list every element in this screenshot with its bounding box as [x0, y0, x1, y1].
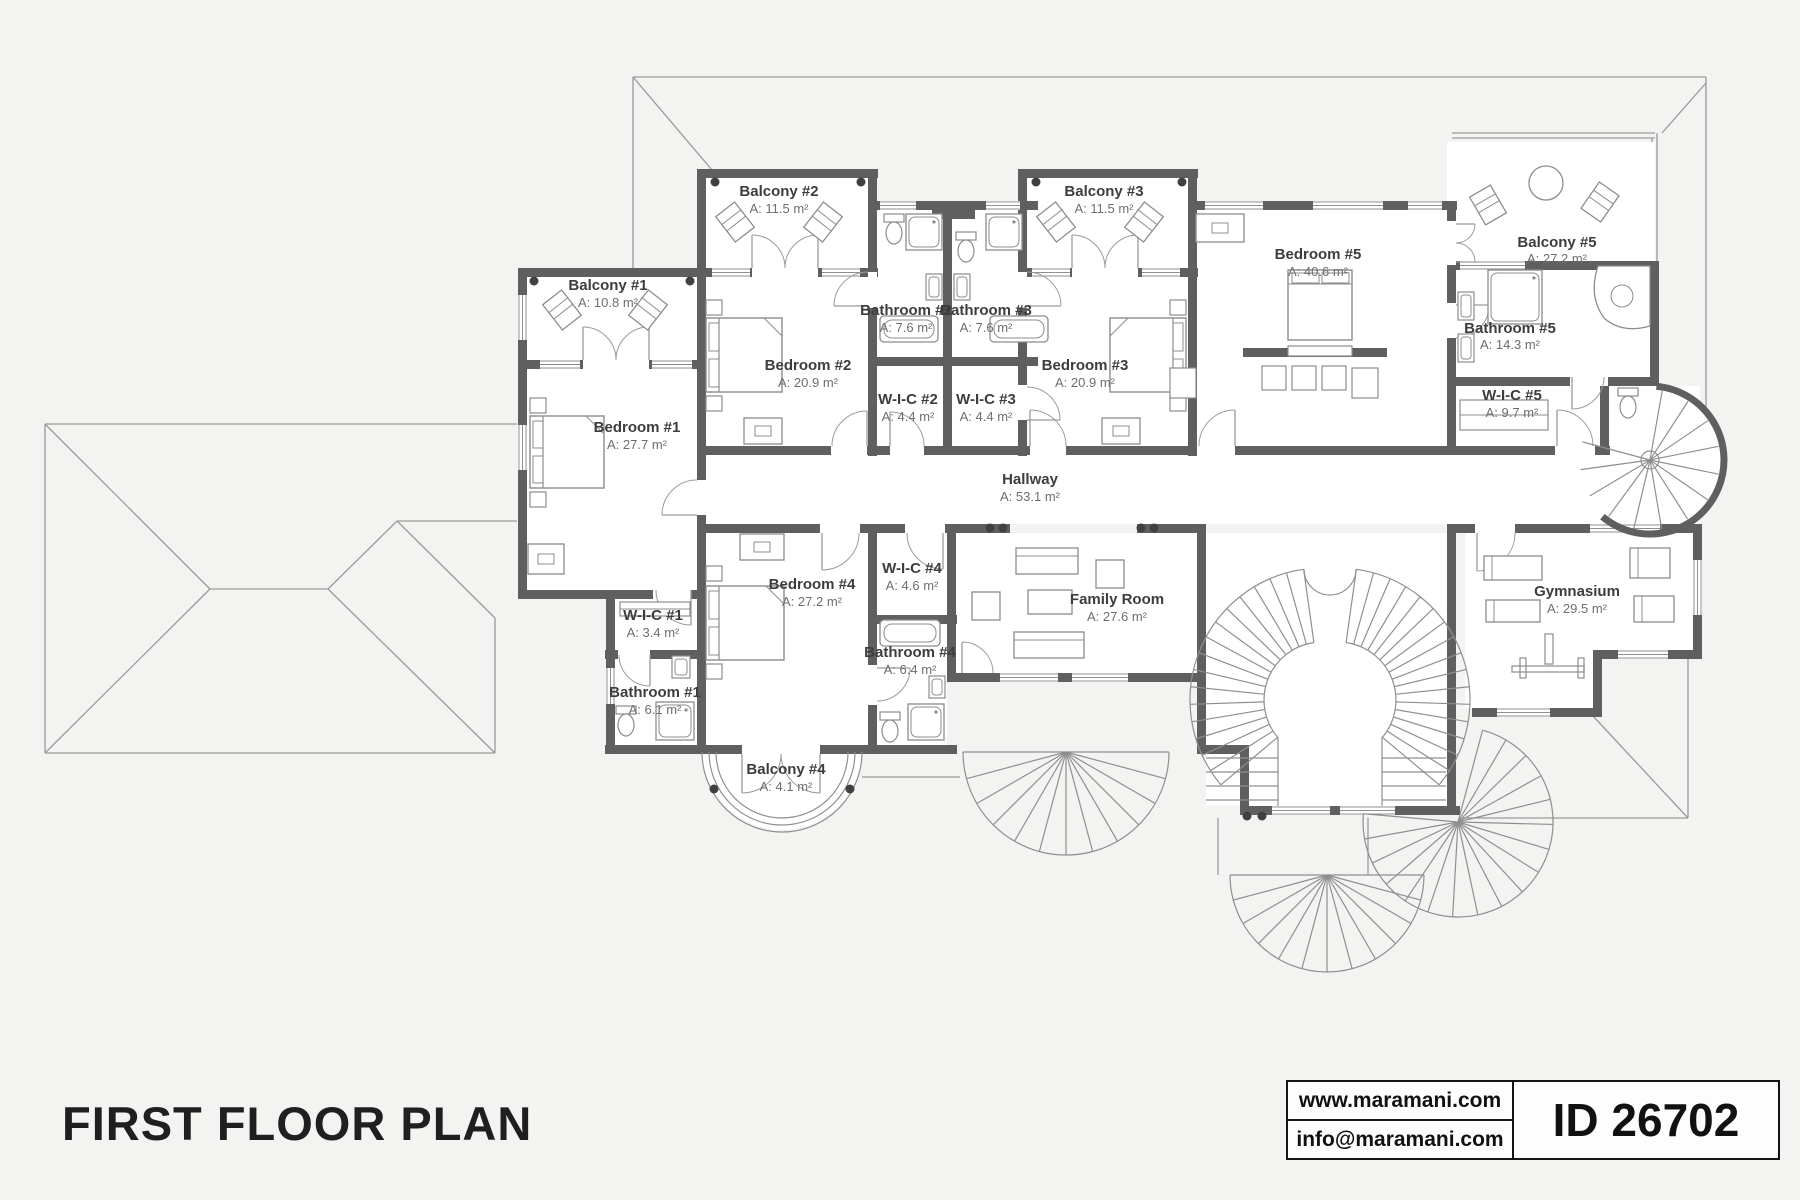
label-balcony1-name: Balcony #1 [568, 277, 647, 294]
label-bedroom3-name: Bedroom #3 [1042, 357, 1129, 374]
label-balcony3-area: A: 11.5 m² [1074, 201, 1134, 216]
label-balcony5-area: A: 27.2 m² [1527, 251, 1588, 266]
label-balcony5-name: Balcony #5 [1517, 234, 1596, 251]
label-wic1-area: A: 3.4 m² [627, 625, 680, 640]
label-balcony4-area: A: 4.1 m² [760, 779, 813, 794]
label-bathroom4-name: Bathroom #4 [864, 644, 956, 661]
label-bathroom5-area: A: 14.3 m² [1480, 337, 1541, 352]
label-family-name: Family Room [1070, 591, 1164, 608]
label-bathroom2-name: Bathroom #2 [860, 302, 952, 319]
label-bathroom5-name: Bathroom #5 [1464, 320, 1556, 337]
label-balcony3-name: Balcony #3 [1064, 183, 1143, 200]
label-wic4-area: A: 4.6 m² [886, 578, 939, 593]
label-bedroom5-name: Bedroom #5 [1275, 246, 1362, 263]
label-wic2-area: A: 4.4 m² [882, 409, 935, 424]
label-bedroom5-area: A: 40.6 m² [1288, 264, 1349, 279]
label-bedroom1-area: A: 27.7 m² [607, 437, 668, 452]
label-balcony4-name: Balcony #4 [746, 761, 826, 778]
label-bedroom4-area: A: 27.2 m² [782, 594, 843, 609]
label-wic2-name: W-I-C #2 [878, 391, 938, 408]
label-bedroom2-name: Bedroom #2 [765, 357, 852, 374]
plan-title: FIRST FLOOR PLAN [62, 1096, 532, 1151]
label-gym-area: A: 29.5 m² [1547, 601, 1608, 616]
label-wic4-name: W-I-C #4 [882, 560, 942, 577]
label-gym-name: Gymnasium [1534, 583, 1620, 600]
label-bathroom3-name: Bathroom #3 [940, 302, 1032, 319]
floor-plan-drawing: Balcony #1 A: 10.8 m² Balcony #2 A: 11.5… [0, 0, 1800, 1200]
website-link[interactable]: www.maramani.com [1286, 1080, 1514, 1121]
info-box: www.maramani.com info@maramani.com ID 26… [1286, 1080, 1780, 1160]
plan-id: ID 26702 [1512, 1080, 1780, 1160]
label-wic5-area: A: 9.7 m² [1486, 405, 1539, 420]
label-bedroom4-name: Bedroom #4 [769, 576, 856, 593]
label-balcony1-area: A: 10.8 m² [578, 295, 639, 310]
label-wic1-name: W-I-C #1 [623, 607, 683, 624]
label-wic3-name: W-I-C #3 [956, 391, 1016, 408]
label-balcony2-name: Balcony #2 [739, 183, 818, 200]
floor-plan-page: Balcony #1 A: 10.8 m² Balcony #2 A: 11.5… [0, 0, 1800, 1200]
label-wic3-area: A: 4.4 m² [960, 409, 1013, 424]
label-bathroom2-area: A: 7.6 m² [880, 320, 933, 335]
label-hallway-name: Hallway [1002, 471, 1059, 488]
label-bathroom3-area: A: 7.6 m² [960, 320, 1013, 335]
label-family-area: A: 27.6 m² [1087, 609, 1148, 624]
email-link[interactable]: info@maramani.com [1286, 1119, 1514, 1160]
label-bathroom1-name: Bathroom #1 [609, 684, 701, 701]
label-balcony2-area: A: 11.5 m² [749, 201, 809, 216]
label-bedroom3-area: A: 20.9 m² [1055, 375, 1116, 390]
label-bedroom1-name: Bedroom #1 [594, 419, 681, 436]
label-bathroom4-area: A: 6.4 m² [884, 662, 937, 677]
label-hallway-area: A: 53.1 m² [1000, 489, 1061, 504]
label-bedroom2-area: A: 20.9 m² [778, 375, 839, 390]
label-wic5-name: W-I-C #5 [1482, 387, 1542, 404]
label-bathroom1-area: A: 6.1 m² [629, 702, 682, 717]
